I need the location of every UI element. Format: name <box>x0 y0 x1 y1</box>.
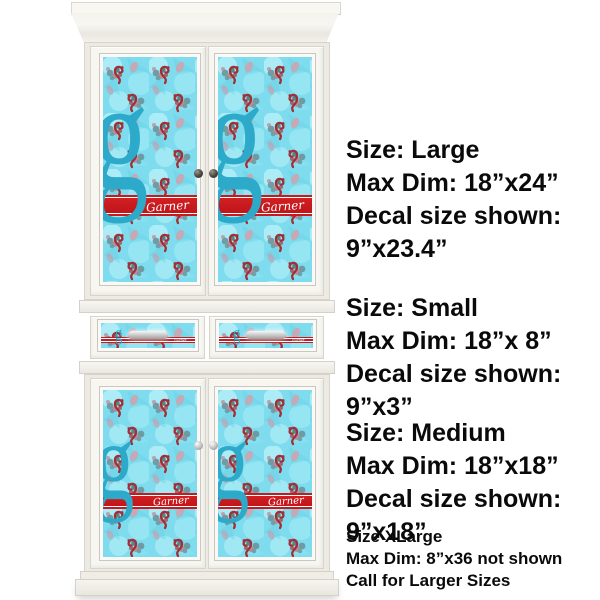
decal-large-left: Garner g <box>100 54 200 285</box>
monogram-letter: g <box>233 324 240 344</box>
ribbon-name-text: Garner <box>174 337 195 342</box>
size-medium-title: Size: Medium <box>346 417 561 450</box>
base-plinth <box>75 579 339 596</box>
drawer-left-handle <box>128 331 168 339</box>
ribbon-name-text: Garner <box>292 337 313 342</box>
size-block-large: Size: Large Max Dim: 18”x24” Decal size … <box>346 134 561 266</box>
size-small-shown-label: Decal size shown: <box>346 358 561 391</box>
ribbon-name-text: Garner <box>267 494 312 508</box>
decal-medium-right: Garner g <box>215 387 315 560</box>
crown-molding-flare <box>71 13 339 42</box>
monogram-letter: g <box>215 55 264 215</box>
size-block-small: Size: Small Max Dim: 18”x 8” Decal size … <box>346 292 561 424</box>
upper-right-door-knob <box>209 169 218 178</box>
ribbon-name-text: Garner <box>152 494 197 508</box>
size-xlarge-call-note: Call for Larger Sizes <box>346 570 562 592</box>
size-xlarge-title: Size XLarge <box>346 526 562 548</box>
drawer-right-handle <box>246 331 286 339</box>
monogram-letter: g <box>100 406 134 518</box>
decal-medium-left: Garner g <box>100 387 200 560</box>
size-small-title: Size: Small <box>346 292 561 325</box>
ribbon-name-text: Garner <box>145 197 197 215</box>
divider-band-lower <box>79 361 335 374</box>
decal-large-right: Garner g <box>215 54 315 285</box>
size-large-max-dim: Max Dim: 18”x24” <box>346 167 561 200</box>
lower-left-door-knob <box>194 441 203 450</box>
size-large-shown-value: 9”x23.4” <box>346 233 561 266</box>
ribbon-name-text: Garner <box>260 197 312 215</box>
size-medium-shown-label: Decal size shown: <box>346 483 561 516</box>
monogram-letter: g <box>115 324 122 344</box>
armoire-product-image: Garner g Garner g Garner g Garner g <box>0 0 600 600</box>
size-xlarge-max-dim: Max Dim: 8”x36 not shown <box>346 548 562 570</box>
lower-right-door-knob <box>209 441 218 450</box>
size-large-title: Size: Large <box>346 134 561 167</box>
size-block-xlarge: Size XLarge Max Dim: 8”x36 not shown Cal… <box>346 526 562 592</box>
upper-left-door-knob <box>194 169 203 178</box>
size-medium-max-dim: Max Dim: 18”x18” <box>346 450 561 483</box>
monogram-letter: g <box>215 406 249 518</box>
divider-band-upper <box>79 300 335 313</box>
size-large-shown-label: Decal size shown: <box>346 200 561 233</box>
size-small-max-dim: Max Dim: 18”x 8” <box>346 325 561 358</box>
monogram-letter: g <box>100 55 149 215</box>
